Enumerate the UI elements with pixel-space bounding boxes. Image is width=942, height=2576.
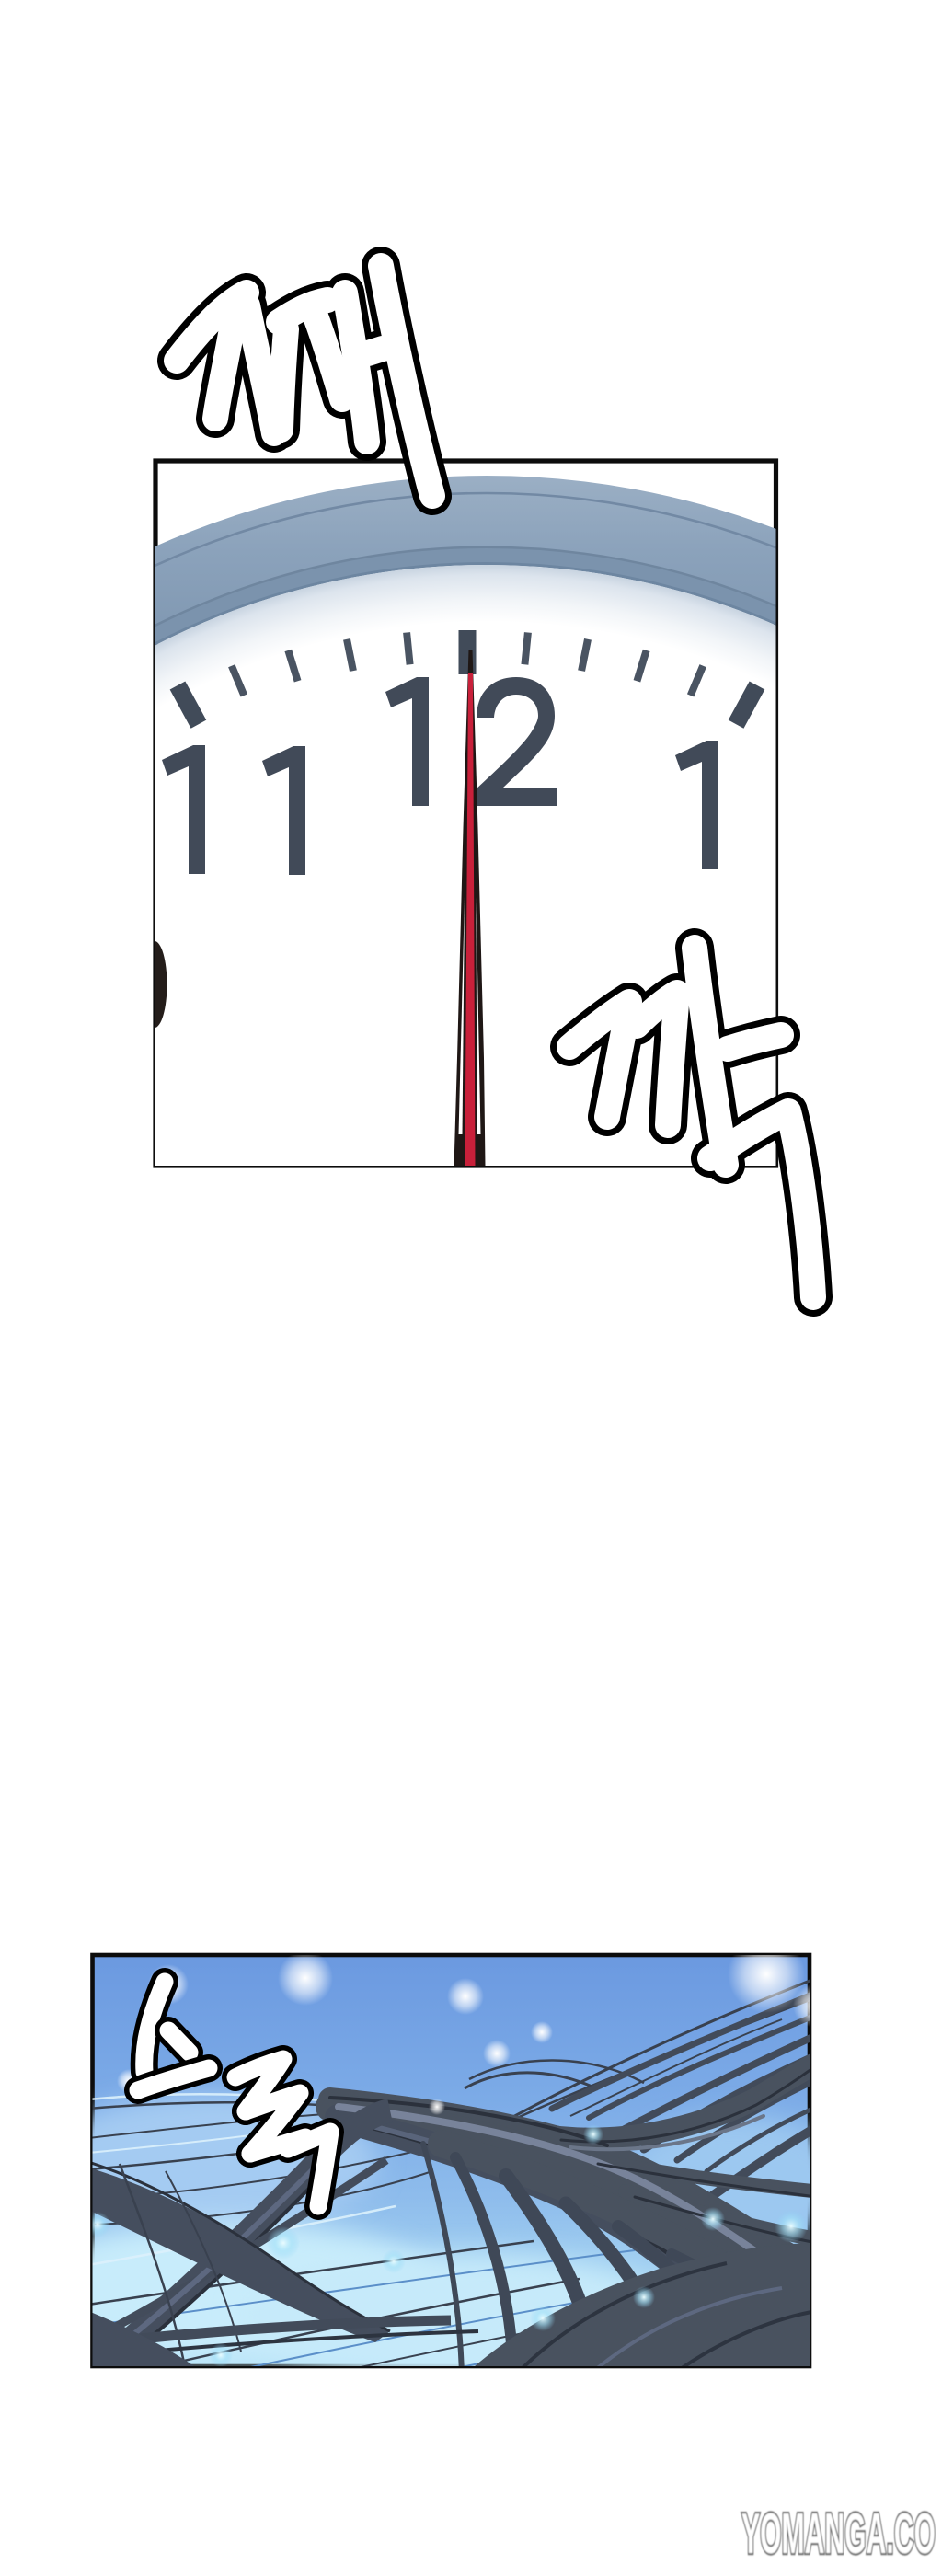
svg-text:YOMANGA.CO: YOMANGA.CO — [741, 2502, 936, 2566]
